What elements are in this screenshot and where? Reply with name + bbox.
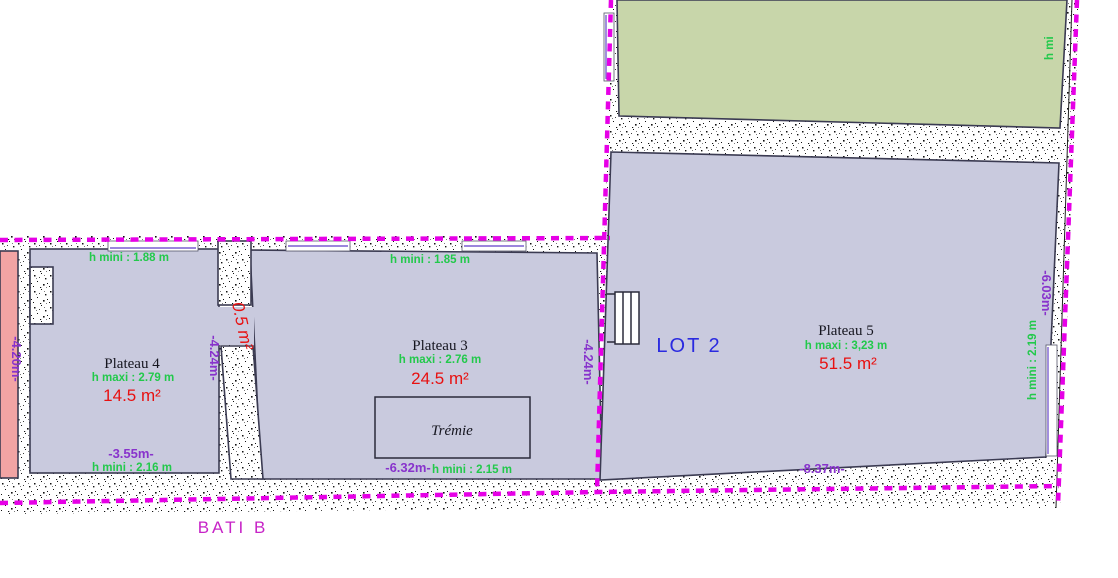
plateau4-title: Plateau 4 [104, 356, 160, 372]
bati-b-label: BATI B [198, 518, 269, 537]
window-symbol-plateau5-right [1046, 345, 1057, 456]
plateau4-height-dim-left: -4.20m- [9, 336, 24, 382]
plateau3-title: Plateau 3 [412, 338, 467, 354]
lot-height-dim: -4.24m- [581, 339, 596, 385]
plateau3-width-dim: -6.32m- [385, 460, 431, 475]
room-green-upper [617, 0, 1067, 128]
wall-segment-upper [218, 241, 251, 305]
floor-plan: h mini : 1.88 m Plateau 4 h maxi : 2.79 … [0, 0, 1118, 578]
plateau5-height-dim-right: -6.03m- [1039, 270, 1054, 316]
plateau4-hmini-top: h mini : 1.88 m [89, 252, 169, 264]
plateau3-hmini-top: h mini : 1.85 m [390, 254, 470, 266]
plateau5-title: Plateau 5 [818, 323, 873, 339]
plateau5-width-dim: -8.37m- [799, 461, 845, 476]
room-plateau5-lot2 [600, 152, 1059, 480]
plateau5-area: 51.5 m² [819, 354, 877, 373]
plateau5-hmini-right: h mini : 2.19 m [1027, 320, 1039, 400]
tremie-label: Trémie [431, 423, 473, 439]
pillar-plateau4 [30, 267, 53, 324]
green-room-hmini-cut: h mi [1044, 36, 1056, 60]
plateau4-width-dim: -3.55m- [108, 446, 154, 461]
plateau4-hmini-bottom: h mini : 2.16 m [92, 462, 172, 474]
lot2-label: LOT 2 [656, 335, 721, 357]
plateau4-hmaxi: h maxi : 2.79 m [92, 372, 174, 384]
plateau3-hmaxi: h maxi : 2.76 m [399, 354, 481, 366]
plateau5-hmaxi: h maxi : 3,23 m [805, 340, 887, 352]
plateau3-hmini-bottom: h mini : 2.15 m [432, 464, 512, 476]
window-symbol-plateau3-top-right [462, 241, 526, 251]
window-symbol-plateau4-top [108, 241, 198, 251]
floor-plan-canvas: h mini : 1.88 m Plateau 4 h maxi : 2.79 … [0, 0, 1118, 578]
plateau4-area: 14.5 m² [103, 386, 161, 405]
window-symbol-plateau3-top-left [286, 241, 350, 251]
wall-height-dim: -4.24m- [207, 335, 222, 381]
plateau3-area: 24.5 m² [411, 369, 469, 388]
